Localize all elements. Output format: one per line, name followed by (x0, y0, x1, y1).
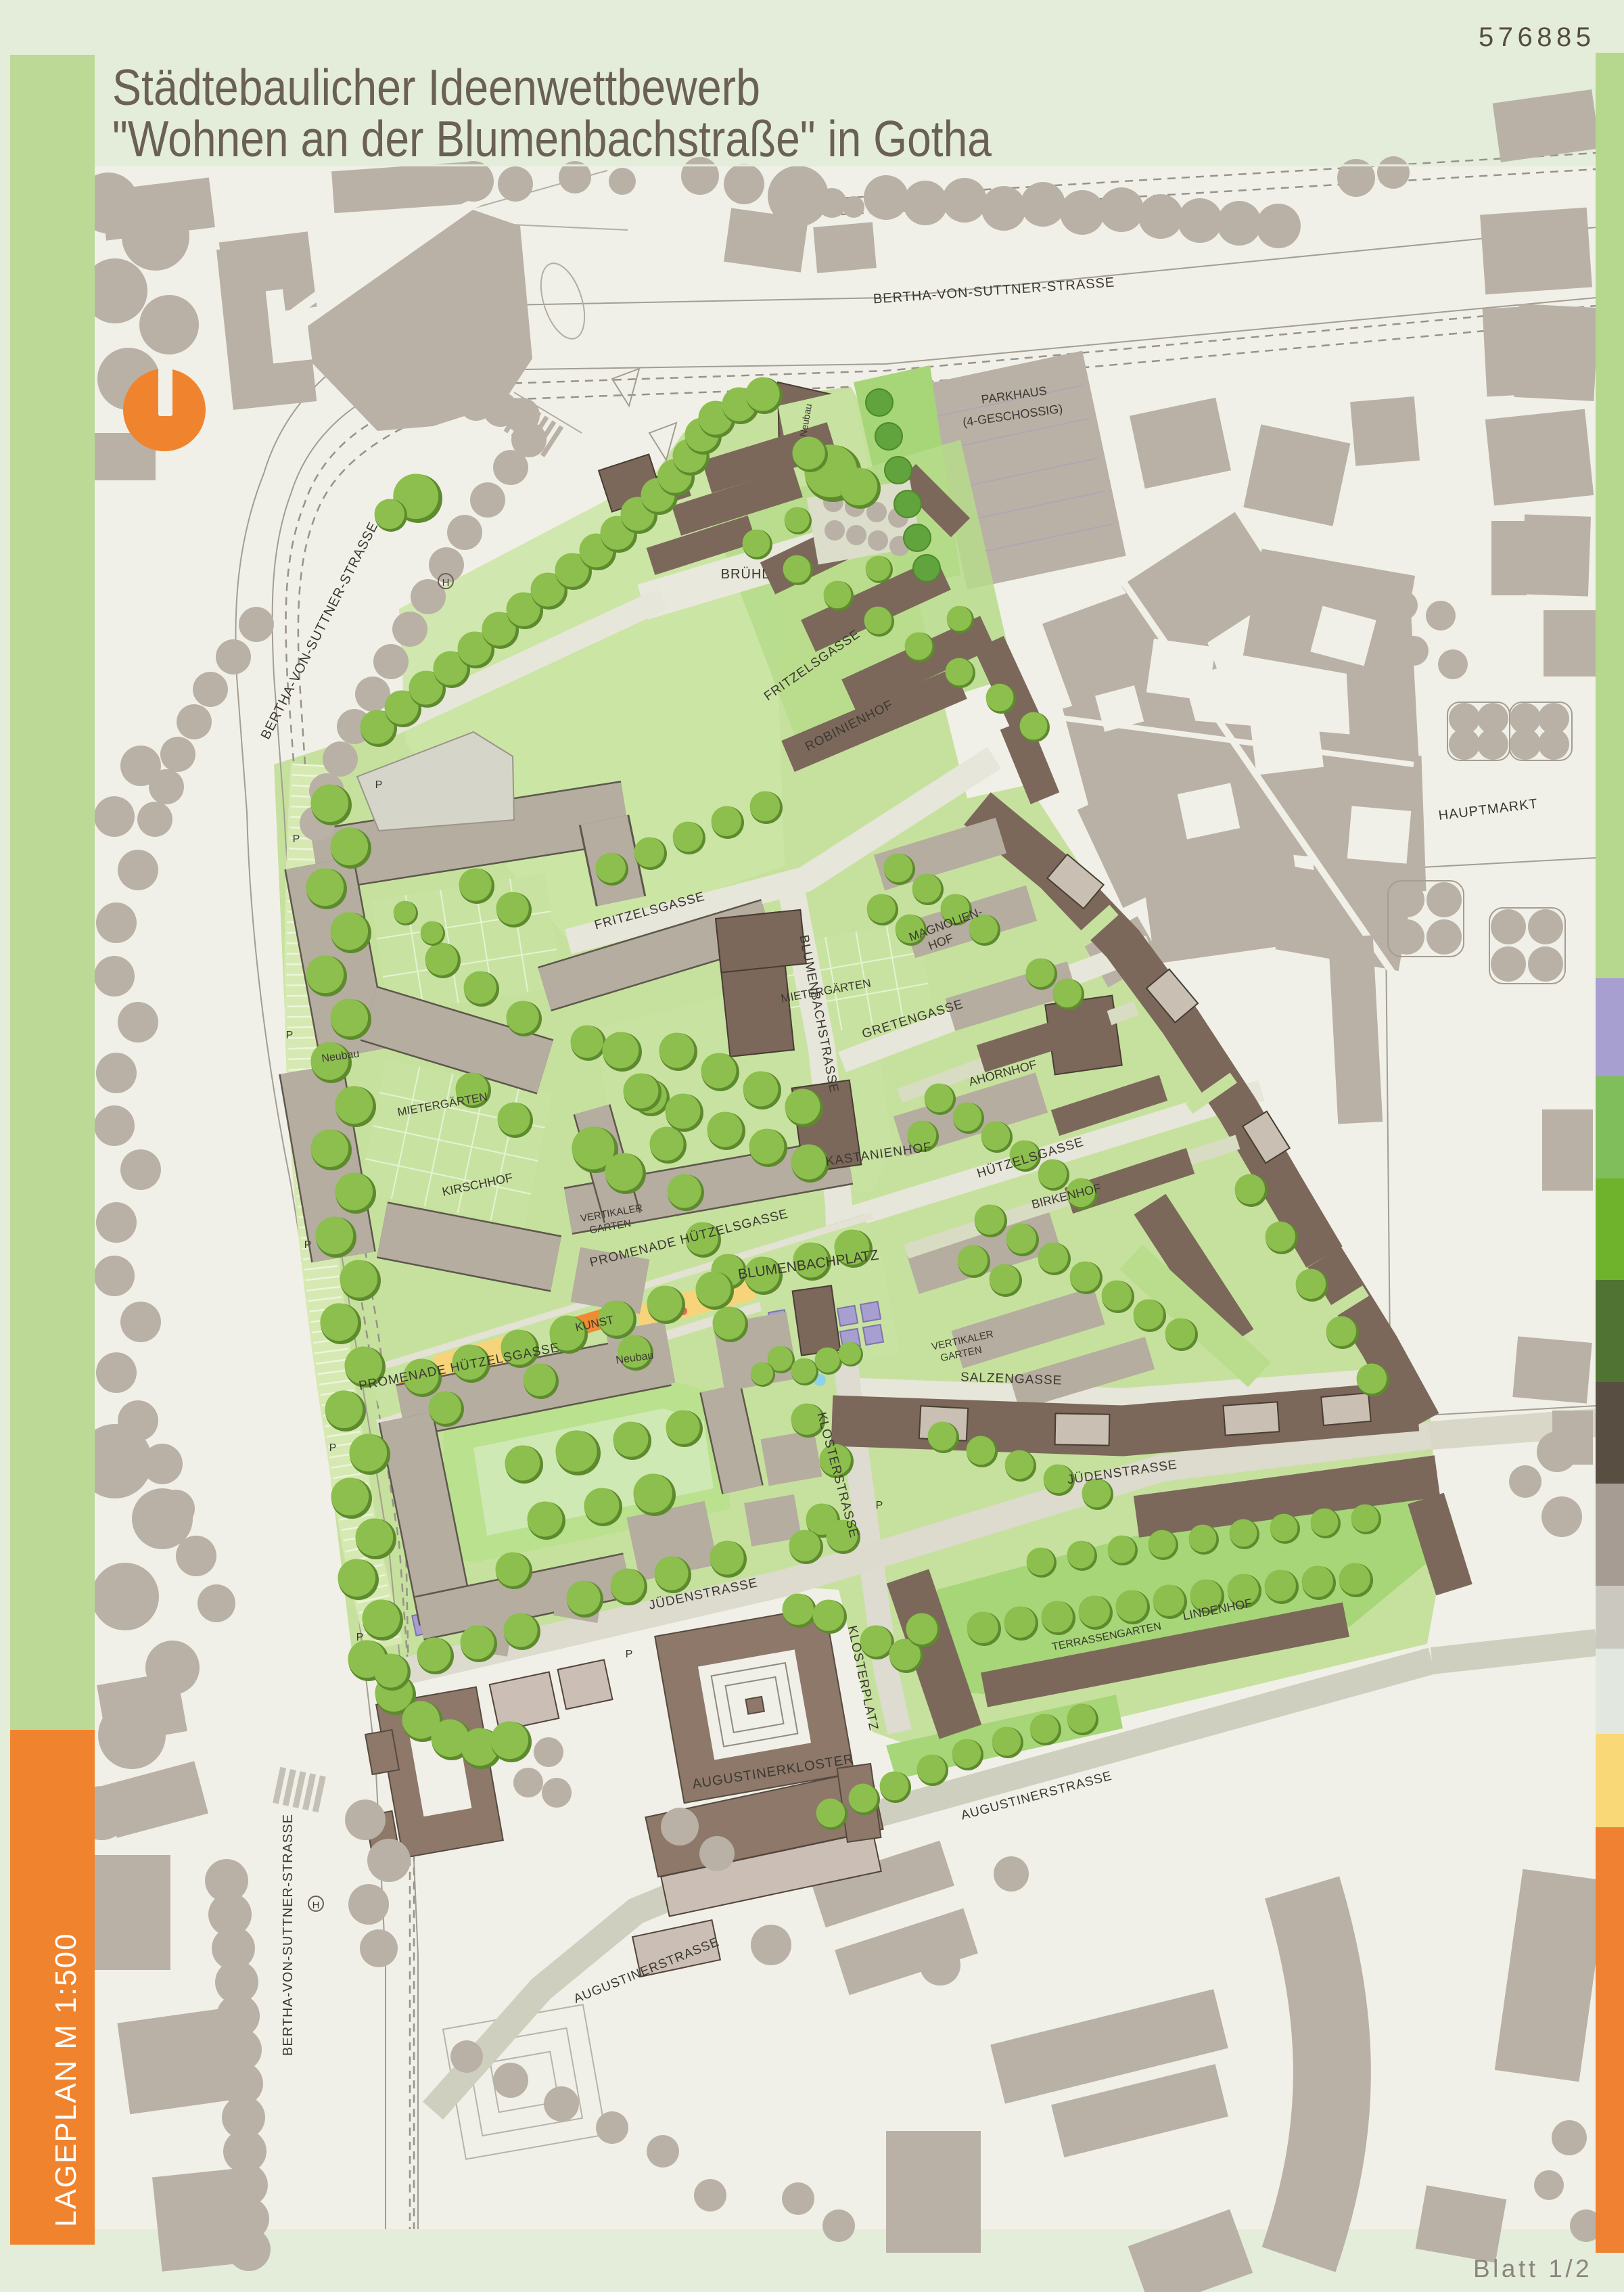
svg-text:P: P (304, 1239, 312, 1251)
svg-text:Städtebaulicher Ideenwettbewer: Städtebaulicher Ideenwettbewerb (112, 59, 760, 116)
svg-text:P: P (329, 1442, 337, 1454)
svg-text:P: P (293, 833, 300, 845)
svg-text:576885: 576885 (1479, 22, 1595, 52)
svg-text:H: H (312, 1900, 320, 1911)
svg-text:P: P (375, 779, 383, 791)
svg-text:P: P (876, 1500, 883, 1511)
svg-text:BRÜHL: BRÜHL (721, 567, 770, 582)
svg-text:P: P (356, 1632, 364, 1643)
svg-text:LAGEPLAN M 1:500: LAGEPLAN M 1:500 (49, 1932, 83, 2227)
svg-text:BERTHA-VON-SUTTNER-STRASSE: BERTHA-VON-SUTTNER-STRASSE (281, 1814, 296, 2056)
svg-text:Blatt 1/2: Blatt 1/2 (1473, 2255, 1592, 2283)
svg-text:"Wohnen an der Blumenbachstraß: "Wohnen an der Blumenbachstraße" in Goth… (112, 110, 992, 167)
svg-text:P: P (626, 1649, 633, 1660)
svg-text:P: P (286, 1030, 294, 1041)
svg-text:H: H (442, 577, 450, 589)
